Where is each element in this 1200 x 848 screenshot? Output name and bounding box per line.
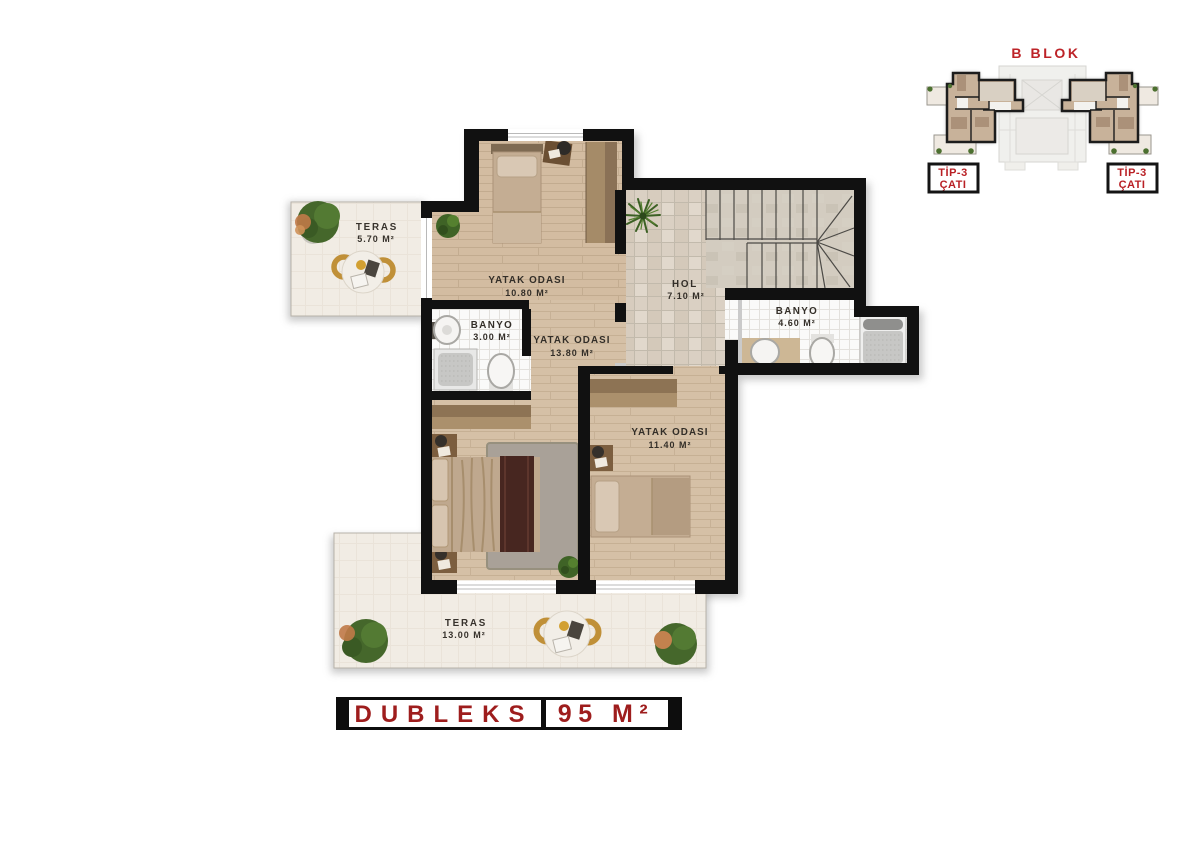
svg-text:95 M²: 95 M² xyxy=(558,700,654,728)
svg-text:13.00 M²: 13.00 M² xyxy=(442,630,486,640)
svg-text:YATAK ODASI: YATAK ODASI xyxy=(533,335,610,346)
svg-text:BANYO: BANYO xyxy=(471,320,513,331)
svg-text:3.00 M²: 3.00 M² xyxy=(473,332,511,342)
svg-text:YATAK ODASI: YATAK ODASI xyxy=(631,427,708,438)
svg-text:BANYO: BANYO xyxy=(776,306,818,317)
svg-text:DUBLEKS: DUBLEKS xyxy=(354,701,533,728)
svg-text:TİP-3: TİP-3 xyxy=(1117,166,1146,179)
svg-text:ÇATI: ÇATI xyxy=(1119,179,1146,191)
svg-text:TERAS: TERAS xyxy=(445,618,487,629)
svg-text:11.40 M²: 11.40 M² xyxy=(648,440,691,450)
svg-text:B BLOK: B BLOK xyxy=(1011,45,1080,61)
svg-text:HOL: HOL xyxy=(672,279,698,290)
svg-text:5.70 M²: 5.70 M² xyxy=(357,234,395,244)
svg-text:TERAS: TERAS xyxy=(356,222,398,233)
svg-text:ÇATI: ÇATI xyxy=(940,179,967,191)
svg-text:13.80 M²: 13.80 M² xyxy=(550,348,594,358)
svg-text:YATAK ODASI: YATAK ODASI xyxy=(488,275,565,286)
svg-text:4.60 M²: 4.60 M² xyxy=(778,318,816,328)
svg-text:10.80 M²: 10.80 M² xyxy=(505,288,549,298)
svg-text:TİP-3: TİP-3 xyxy=(938,166,967,179)
svg-text:7.10 M²: 7.10 M² xyxy=(667,291,705,301)
